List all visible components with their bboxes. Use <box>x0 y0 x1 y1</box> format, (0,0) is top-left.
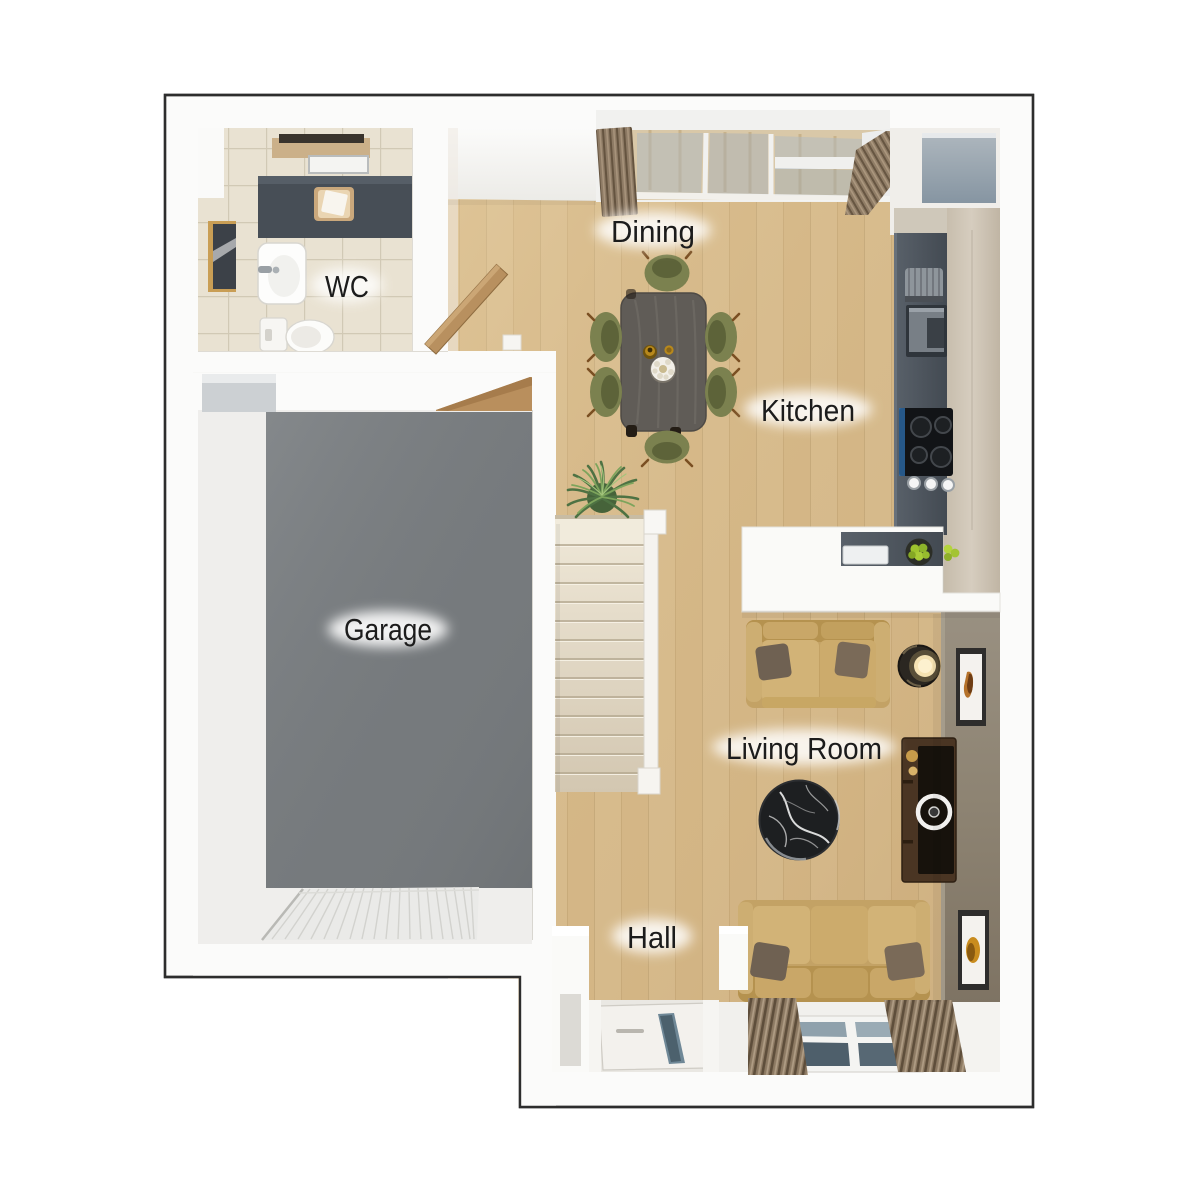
svg-text:Hall: Hall <box>627 920 677 955</box>
svg-text:Kitchen: Kitchen <box>761 393 855 428</box>
svg-text:Garage: Garage <box>344 612 432 647</box>
svg-text:WC: WC <box>325 269 369 304</box>
svg-text:Dining: Dining <box>611 214 695 249</box>
svg-text:Living Room: Living Room <box>726 731 882 766</box>
